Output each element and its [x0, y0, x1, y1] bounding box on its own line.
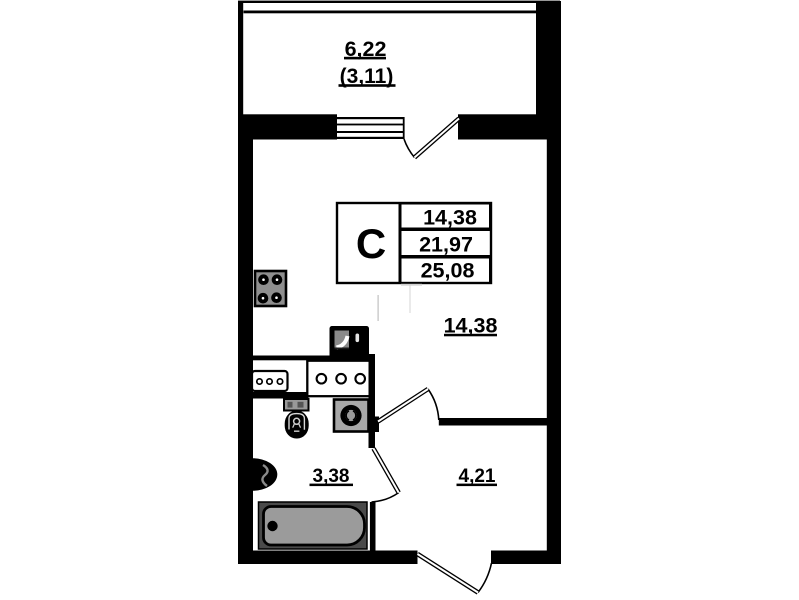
svg-text:25,08: 25,08 [421, 258, 475, 282]
svg-text:С: С [356, 220, 386, 267]
svg-text:14,38: 14,38 [423, 206, 477, 230]
svg-text:21,97: 21,97 [419, 233, 473, 257]
